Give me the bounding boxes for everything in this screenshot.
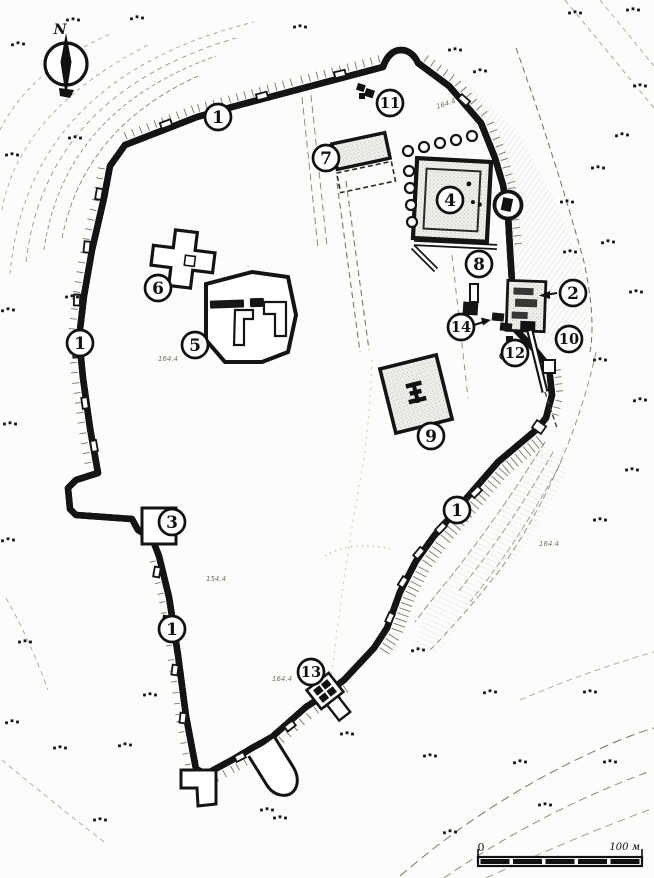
vegetation-dots-icon: [593, 517, 607, 521]
building-9-structure: [380, 355, 452, 433]
spot-height-label: 164.4: [435, 97, 457, 111]
vegetation-dots-icon: [5, 152, 19, 156]
wall-tower: [95, 188, 103, 200]
vegetation-dots-icon: [1, 307, 15, 312]
svg-text:1: 1: [451, 501, 463, 521]
vegetation-dots-icon: [340, 731, 354, 735]
wall-tower: [81, 397, 88, 409]
vegetation-dots-icon: [629, 289, 643, 293]
structure-11-ruin: [356, 83, 375, 99]
vegetation-dots-icon: [443, 829, 457, 834]
vegetation-dots-icon: [538, 802, 552, 806]
round-tower: [495, 192, 522, 219]
vegetation-dots-icon: [603, 759, 617, 763]
marker-east-gate-2: 2: [560, 280, 586, 306]
marker-tower-3: 3: [159, 509, 185, 535]
wall-tower: [179, 713, 186, 724]
svg-text:3: 3: [166, 513, 178, 533]
svg-text:13: 13: [301, 664, 321, 681]
svg-text:1: 1: [74, 334, 86, 354]
svg-text:14: 14: [451, 319, 471, 336]
vegetation-dots-icon: [293, 24, 307, 28]
vegetation-dots-icon: [423, 753, 437, 757]
svg-text:7: 7: [320, 149, 332, 169]
enclosure-5-compound: [206, 272, 296, 362]
marker-feature-8: 8: [466, 251, 492, 277]
vegetation-dots-icon: [130, 15, 144, 20]
gate-arrow-2-icon: [474, 318, 491, 326]
spot-height-label: 164.4: [539, 540, 559, 548]
svg-text:9: 9: [425, 427, 437, 447]
marker-building-7: 7: [313, 145, 339, 171]
vegetation-dots-icon: [583, 689, 597, 693]
vegetation-dots-icon: [591, 165, 605, 169]
vegetation-dots-icon: [66, 17, 80, 21]
marker-wall-southeast: 1: [444, 497, 470, 523]
svg-text:8: 8: [473, 255, 485, 275]
vegetation-dots-icon: [68, 135, 82, 139]
svg-text:10: 10: [559, 331, 579, 348]
vegetation-dots-icon: [1, 537, 15, 542]
vegetation-dots-icon: [5, 719, 19, 724]
wall-tower: [385, 612, 395, 624]
feature-8-structure: [463, 284, 479, 316]
vegetation-dots-icon: [273, 815, 287, 819]
vegetation-dots-icon: [601, 239, 615, 244]
svg-text:2: 2: [567, 284, 579, 304]
vegetation-dots-icon: [118, 742, 132, 747]
vegetation-dots-icon: [625, 467, 639, 471]
marker-wall-north: 1: [205, 104, 231, 130]
vegetation-dots-icon: [568, 10, 582, 14]
vegetation-dots-icon: [143, 692, 157, 696]
svg-text:11: 11: [380, 95, 400, 112]
vegetation-dots-icon: [260, 807, 274, 811]
vegetation-dots-icon: [633, 83, 647, 87]
marker-building-4: 4: [437, 187, 463, 213]
north-compass: N: [45, 22, 87, 98]
svg-text:1: 1: [166, 620, 178, 640]
vegetation-dots-icon: [615, 132, 629, 137]
svg-text:5: 5: [189, 336, 201, 356]
wall-tower: [90, 440, 98, 452]
vegetation-symbols: [1, 7, 647, 834]
vegetation-dots-icon: [448, 47, 462, 51]
marker-enclosure-5: 5: [182, 332, 208, 358]
marker-building-9: 9: [418, 423, 444, 449]
marker-wall-southwest: 1: [159, 616, 185, 642]
southwest-corner-tower: [181, 770, 216, 806]
wall-tower: [334, 70, 346, 78]
wall-tower: [435, 522, 447, 534]
scale-bar-segments: [481, 859, 640, 864]
marker-church-6: 6: [145, 275, 171, 301]
vegetation-dots-icon: [513, 759, 527, 764]
svg-text:6: 6: [152, 279, 164, 299]
marker-wall-west: 1: [67, 330, 93, 356]
spot-height-label: 154.4: [206, 575, 226, 583]
marker-feature-10: 10: [556, 326, 582, 352]
vegetation-dots-icon: [593, 357, 607, 361]
vegetation-dots-icon: [18, 639, 32, 643]
marker-south-gate-13: 13: [298, 659, 324, 685]
svg-text:1: 1: [212, 108, 224, 128]
compass-north-label: N: [53, 22, 68, 38]
spot-height-labels: 164.4164.4154.4164.4164.4: [158, 97, 559, 683]
vegetation-dots-icon: [11, 41, 25, 46]
vegetation-dots-icon: [473, 68, 487, 73]
vegetation-dots-icon: [633, 397, 647, 402]
scale-bar: 0 100 м: [478, 841, 643, 866]
east-wall-tower: [543, 360, 555, 373]
vegetation-dots-icon: [93, 817, 107, 821]
vegetation-dots-icon: [53, 745, 67, 749]
marker-feature-14: 14: [448, 314, 474, 340]
scale-start-label: 0: [478, 841, 485, 854]
wall-tower: [413, 547, 425, 559]
wall-tower: [83, 241, 90, 253]
marker-structure-11: 11: [377, 90, 403, 116]
spot-height-label: 164.4: [272, 675, 292, 683]
marker-feature-12: 12: [502, 340, 528, 366]
wall-tower: [153, 567, 161, 578]
spot-height-label: 164.4: [158, 355, 178, 363]
map-canvas: N 0 100 м 164.4164.4154.4164.4164.4 1117…: [0, 0, 654, 878]
scale-end-label: 100 м: [609, 842, 640, 853]
svg-text:4: 4: [444, 191, 456, 211]
vegetation-dots-icon: [483, 689, 497, 694]
contour-lines: [0, 0, 654, 878]
vegetation-dots-icon: [626, 7, 640, 11]
svg-text:12: 12: [505, 345, 525, 362]
wall-tower: [171, 665, 178, 676]
site-plan-map: N 0 100 м 164.4164.4154.4164.4164.4 1117…: [0, 0, 654, 878]
vegetation-dots-icon: [3, 421, 17, 425]
building-7-structure: [332, 133, 396, 193]
